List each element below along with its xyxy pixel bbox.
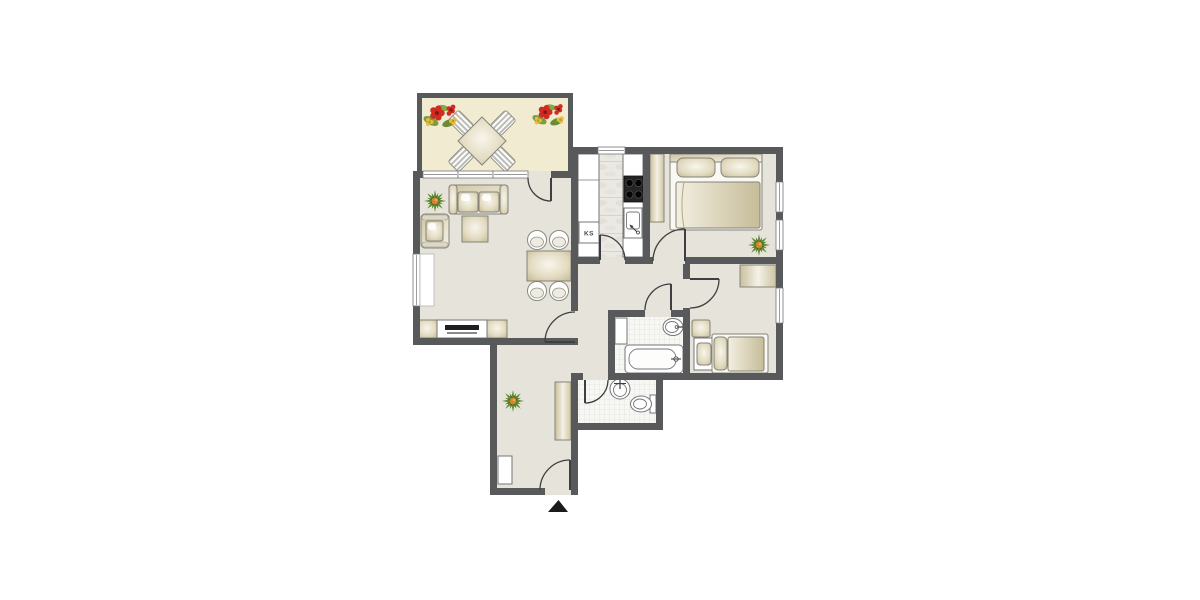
bedroom-2-window bbox=[776, 288, 783, 323]
entrance-arrow-icon bbox=[548, 500, 568, 512]
wall-niche bbox=[498, 456, 512, 484]
pillow bbox=[714, 337, 727, 370]
dining-chair bbox=[528, 282, 547, 301]
dining-chair bbox=[528, 231, 547, 250]
single-bed bbox=[694, 334, 768, 373]
balcony-window bbox=[423, 171, 528, 178]
cabinet bbox=[740, 265, 776, 287]
washbasin bbox=[663, 319, 683, 336]
sofa bbox=[449, 185, 508, 214]
toilet bbox=[631, 395, 657, 413]
bathtub bbox=[625, 345, 683, 373]
kitchen-window bbox=[598, 147, 625, 154]
tv-sideboard bbox=[417, 320, 507, 338]
kitchen-floor bbox=[599, 154, 624, 257]
hallway-cabinet bbox=[555, 382, 571, 440]
dining-table bbox=[527, 251, 571, 281]
window-sill bbox=[420, 254, 434, 306]
kitchen-counter-right bbox=[623, 154, 643, 257]
cabinet bbox=[487, 320, 507, 338]
coffee-table bbox=[462, 216, 488, 242]
pillow bbox=[677, 158, 715, 177]
bathroom-shelf bbox=[615, 318, 627, 344]
nightstand bbox=[692, 320, 710, 337]
armchair bbox=[421, 214, 449, 248]
tv bbox=[445, 325, 479, 330]
floor-plan: KS bbox=[0, 0, 1200, 600]
duvet bbox=[676, 182, 760, 228]
kitchen-sink bbox=[624, 208, 642, 238]
duvet bbox=[728, 337, 764, 371]
living-room-window bbox=[413, 254, 434, 306]
pillow bbox=[721, 158, 759, 177]
wardrobe bbox=[650, 154, 664, 222]
dining-chair bbox=[550, 282, 569, 301]
double-bed bbox=[670, 154, 762, 230]
stove bbox=[624, 176, 643, 202]
dining-chair bbox=[550, 231, 569, 250]
fridge-label: KS bbox=[584, 231, 594, 238]
